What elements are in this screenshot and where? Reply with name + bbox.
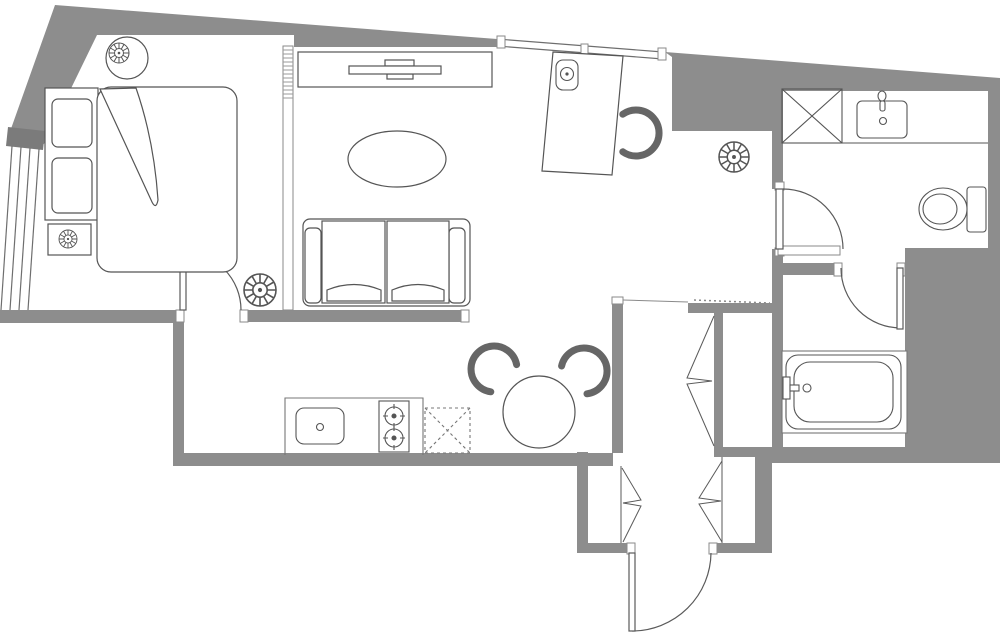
wall-tub-bottom [765,447,937,463]
wall-closet-top [688,303,772,313]
coffee-table [348,131,446,187]
left-window [1,146,39,310]
desk [542,52,623,175]
tv-mount-top [385,60,414,66]
wall-entry-bottom-left [577,543,628,553]
wall-entry-right [755,457,772,553]
pillow [52,99,92,147]
desk-chair [623,110,659,156]
sofa-cushion [327,285,381,302]
bifold-lower-left [622,468,641,542]
bedroom-partition [283,46,293,310]
wall-entry-bottom-right [715,543,767,553]
sofa [303,219,470,306]
cooktop [379,401,409,452]
desk-phone [556,60,578,90]
basin-drain [880,118,887,125]
bathroom-tub [782,351,907,433]
bathroom-tub-door [841,268,903,329]
work-area [542,52,659,175]
bifold-upper-right [687,316,714,446]
sofa-arm-left [305,228,321,303]
wall-kitchen-left [173,310,184,457]
wall-top-right-block [665,52,1000,131]
overhead-dotted-line [694,300,770,303]
dining-area [471,346,607,448]
wall-closet-right [772,313,783,447]
tv-mount-bottom [387,74,413,79]
wall-bath-divider [783,263,835,275]
pillow [52,158,92,213]
bedroom-ceiling-light-icon [244,274,276,306]
washbasin [857,91,907,138]
entry-door [629,553,711,631]
shower-box [782,89,842,143]
dining-chair [471,346,517,392]
bath-threshold [778,246,840,255]
wall-closet-mid [714,447,772,457]
living-room [298,52,492,306]
toilet-tank [967,187,986,232]
toilet [919,187,986,232]
wall-bath-left-b [772,249,783,313]
dining-table [503,376,575,448]
wall-hall-right [714,313,723,447]
closet-bifold-doors [621,316,722,543]
hall-ceiling-light-icon [719,142,749,172]
wall-bottom-left [0,310,177,323]
kitchen [285,398,470,455]
sofa-cushion [392,285,444,302]
wall-right-block [905,248,1000,463]
appliance-space [425,408,470,453]
nightstand [48,224,91,255]
wall-kitchen-bottom [173,453,613,466]
tv [349,66,441,74]
faucet [878,91,886,101]
wall-hall-left [612,303,623,453]
kitchen-sink [296,408,344,444]
wall-entry-left [577,452,588,553]
bathroom-wc [782,89,988,232]
table-lamp-icon [109,43,129,63]
nightstand-lamp-icon [59,230,77,248]
wall-right-upper [988,91,1000,251]
bifold-lower-right [699,461,722,542]
thresholds [623,300,770,303]
dining-chair [562,348,607,394]
floor-plan [0,0,1000,634]
sofa-arm-right [449,228,465,303]
wall-living-bottom [247,310,462,322]
bathroom-wc-door [776,189,843,249]
wall-bath-left-a [772,131,783,189]
